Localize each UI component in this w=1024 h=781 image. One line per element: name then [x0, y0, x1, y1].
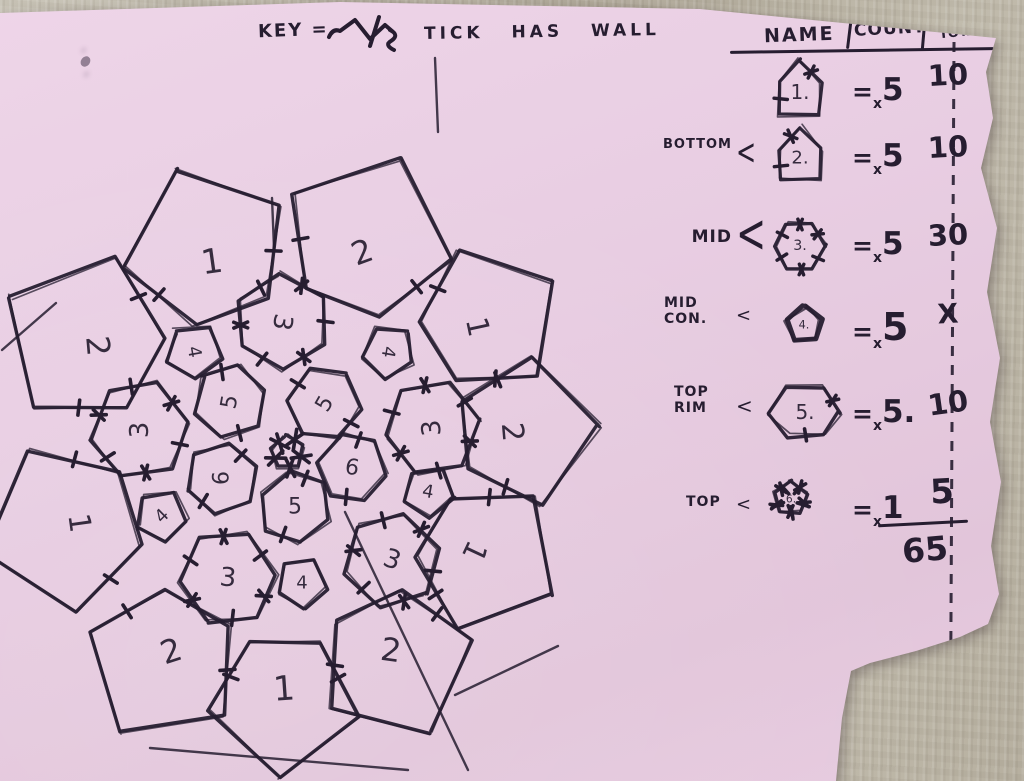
- wall-tick: [431, 286, 445, 291]
- row-wall-total: 10: [919, 57, 977, 94]
- row-count: =x5: [852, 72, 904, 108]
- wall-tick: [384, 410, 399, 414]
- shape-label: 5.: [795, 400, 814, 424]
- shape-glyph-2: 2.: [760, 118, 840, 198]
- shape-label: 5: [311, 392, 340, 417]
- sketch-shape-3: 3: [90, 379, 190, 480]
- shape-label: 5: [216, 393, 243, 411]
- sketch-shape-2: 2.: [774, 124, 822, 180]
- table-row: BOTTOM < 2. =x5 10: [656, 116, 996, 204]
- wall-tick: [394, 451, 408, 455]
- sketch-shape-4: 4: [279, 560, 328, 610]
- row-wall-total: X: [919, 298, 977, 332]
- shape-label: 1.: [790, 80, 809, 104]
- row-group-label: MID: [656, 228, 732, 248]
- wall-tick: [232, 610, 234, 625]
- stray-sketch-line: [435, 58, 438, 132]
- shape-label: 6.: [786, 493, 796, 506]
- shape-label: 1: [458, 314, 496, 340]
- row-count: =x1: [852, 490, 904, 526]
- row-wall-total: 10: [918, 382, 978, 423]
- wall-tick: [827, 399, 839, 401]
- table-row: MID CON. < 4. =x5 X: [656, 283, 996, 371]
- column-walls-total: TOTAL: [938, 23, 985, 43]
- wall-tick: [345, 512, 468, 770]
- row-wall-total: 5: [913, 471, 971, 514]
- row-bracket: <: [736, 494, 751, 515]
- row-wall-total: 30: [919, 217, 977, 254]
- sketch-shape-2: 2: [328, 590, 473, 735]
- shape-label: 1: [272, 668, 296, 709]
- stray-sketch-line: [150, 748, 408, 770]
- wall-tick: [791, 507, 793, 519]
- shape-label: 6: [210, 471, 235, 485]
- shape-label: 2: [346, 231, 378, 274]
- sketch-shape-6: 6.: [770, 480, 810, 519]
- shape-outline: [295, 160, 452, 315]
- sketch-shape-3: 3: [384, 378, 481, 478]
- shape-label: 4: [296, 573, 307, 594]
- stray-sketch-line: [345, 512, 468, 770]
- wall-tick: [130, 379, 132, 394]
- row-group-label: MID CON.: [664, 295, 740, 327]
- wall-tick: [173, 443, 188, 446]
- shape-glyph-5: 5.: [760, 374, 850, 450]
- wall-tick: [272, 198, 274, 248]
- shape-label: 4: [377, 345, 400, 360]
- wall-tick: [220, 669, 235, 670]
- wall-tick: [403, 594, 405, 609]
- column-walls-total: WALLS: [931, 5, 994, 31]
- wall-tick: [293, 238, 308, 241]
- row-count: =x5: [852, 226, 904, 262]
- wall-tick: [503, 480, 507, 494]
- wall-tick: [238, 426, 242, 441]
- row-group-label: BOTTOM: [656, 138, 732, 153]
- wall-tick: [221, 365, 223, 380]
- column-count: COUNT: [854, 17, 927, 41]
- wall-tick: [805, 429, 807, 441]
- shape-label: 2.: [791, 148, 808, 169]
- shape-label: 3: [218, 562, 237, 593]
- sketch-shape-4: 4: [362, 326, 414, 379]
- shape-glyph-4: 4.: [774, 295, 834, 355]
- column-name: NAME: [764, 23, 835, 47]
- sketch-shape-4: 4: [404, 469, 455, 519]
- sketch-shape-1: 1.: [774, 58, 822, 117]
- wall-tick: [78, 400, 80, 415]
- stray-sketch-line: [455, 646, 558, 695]
- shape-label: 2: [494, 421, 531, 443]
- wall-tick: [813, 256, 824, 260]
- wall-tick: [805, 70, 818, 74]
- shape-label: 1: [60, 511, 97, 535]
- shape-label: 2: [378, 630, 403, 670]
- wall-tick: [150, 748, 408, 770]
- pink-paper: KEY = TICK HAS WALL 12121212123333344444…: [0, 0, 1024, 781]
- column-separator: [846, 16, 853, 49]
- sketch-shape-4: 4: [137, 492, 189, 542]
- wall-tick: [455, 646, 558, 695]
- shape-label: 4: [151, 505, 174, 528]
- shape-label: 2: [78, 334, 118, 358]
- shape-label: 1: [454, 535, 494, 567]
- shape-label: 4: [183, 345, 206, 360]
- sketch-shape-3: 3: [178, 529, 279, 625]
- shape-glyph-6: 6.: [756, 464, 826, 534]
- wall-tick: [774, 165, 787, 166]
- wall-tick: [435, 58, 438, 132]
- sketch-shape-5: 5: [195, 364, 265, 440]
- wall-tick: [489, 490, 491, 505]
- shape-label: 1: [199, 241, 226, 284]
- shape-label: 2: [155, 630, 186, 672]
- sketch-shape-4: 4.: [784, 306, 822, 341]
- sketch-shape-1: 1: [123, 169, 281, 327]
- sketch-shape-5: 5: [261, 471, 331, 545]
- sketch-shape-3: 3: [234, 271, 333, 372]
- wall-tick: [356, 433, 361, 447]
- table-row: MID < 3. =x5 30: [656, 204, 996, 292]
- table-row: TOP RIM < 5. =x5. 10: [656, 372, 996, 460]
- wall-tick: [812, 234, 823, 235]
- sketch-shape-3: 3.: [775, 219, 827, 275]
- shape-label: 3: [379, 543, 405, 577]
- wall-tick: [345, 489, 346, 504]
- row-bracket: <: [736, 305, 751, 326]
- sketch-shape-6: 6: [317, 432, 388, 504]
- shape-glyph-3: 3.: [760, 206, 840, 286]
- sketch-shape-5: 5.: [768, 385, 842, 441]
- shape-label: 3: [416, 418, 447, 437]
- shape-label: 3: [266, 311, 298, 333]
- row-bracket: <: [736, 394, 753, 418]
- wall-tick: [73, 452, 77, 466]
- wall-tick: [318, 321, 333, 323]
- shape-label: 6: [343, 454, 361, 481]
- shape-label: 5: [288, 495, 302, 520]
- shape-label: 4.: [799, 319, 810, 332]
- row-count: =x5: [852, 305, 908, 349]
- wall-tick: [281, 527, 286, 541]
- shape-label: 3.: [793, 238, 807, 254]
- photo-stage: KEY = TICK HAS WALL 12121212123333344444…: [0, 0, 1024, 781]
- wall-tick: [303, 350, 305, 365]
- grand-total: 65: [900, 528, 949, 571]
- shape-outline: [332, 590, 473, 734]
- sketch-shape-6: 6: [188, 443, 257, 516]
- stray-sketch-line: [272, 198, 274, 248]
- wall-tick: [185, 599, 200, 602]
- paper-wrap: KEY = TICK HAS WALL 12121212123333344444…: [0, 0, 1024, 781]
- sketch-shape-center: [266, 429, 311, 477]
- shape-label: 3: [125, 422, 155, 439]
- row-wall-total: 10: [919, 129, 977, 166]
- wall-tick: [774, 98, 787, 99]
- shape-label: 4: [421, 481, 436, 504]
- wall-tick: [425, 570, 440, 571]
- row-count: =x5.: [852, 394, 915, 430]
- row-bracket: <: [736, 131, 756, 173]
- wall-tick: [381, 513, 384, 528]
- wall-tick: [266, 251, 281, 252]
- row-count: =x5: [852, 138, 904, 174]
